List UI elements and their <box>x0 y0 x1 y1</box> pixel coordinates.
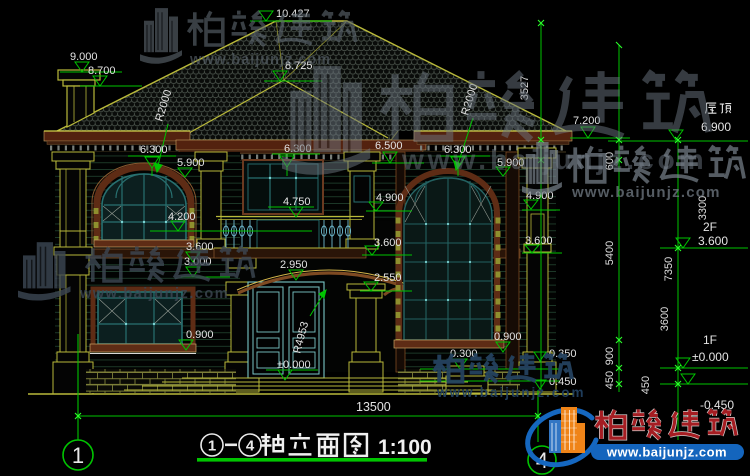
svg-text:3.600: 3.600 <box>374 237 402 249</box>
svg-text:4.200: 4.200 <box>168 211 196 223</box>
svg-text:4: 4 <box>246 438 255 455</box>
svg-text:3.600: 3.600 <box>525 235 553 247</box>
svg-text:450: 450 <box>640 376 652 394</box>
svg-text:450: 450 <box>604 371 616 389</box>
svg-text:www.baijunjz.com: www.baijunjz.com <box>606 445 727 460</box>
svg-text:www.baijunjz.com: www.baijunjz.com <box>79 286 229 302</box>
svg-text:±0.000: ±0.000 <box>692 350 729 364</box>
svg-text:1:100: 1:100 <box>378 436 432 459</box>
svg-text:8.700: 8.700 <box>88 65 116 77</box>
svg-text:6.300: 6.300 <box>140 144 168 156</box>
svg-text:2.950: 2.950 <box>280 259 308 271</box>
svg-text:3600: 3600 <box>659 307 671 331</box>
svg-text:0.900: 0.900 <box>186 329 214 341</box>
svg-text:±0.000: ±0.000 <box>277 359 311 371</box>
svg-text:13500: 13500 <box>356 400 391 414</box>
svg-text:2F: 2F <box>703 220 717 234</box>
svg-text:www.baijunjz.com: www.baijunjz.com <box>436 385 586 400</box>
svg-text:www.baijunjz.com: www.baijunjz.com <box>571 184 721 201</box>
svg-text:5400: 5400 <box>604 241 616 265</box>
svg-text:900: 900 <box>604 347 616 365</box>
svg-text:1: 1 <box>208 438 216 455</box>
svg-text:4.900: 4.900 <box>376 192 404 204</box>
svg-text:3.600: 3.600 <box>698 234 728 248</box>
svg-text:6.500: 6.500 <box>375 140 403 152</box>
svg-text:1: 1 <box>72 443 84 468</box>
svg-text:www.baijunjz.com: www.baijunjz.com <box>189 52 331 68</box>
svg-text:9.000: 9.000 <box>70 51 98 63</box>
svg-text:0.900: 0.900 <box>494 331 522 343</box>
svg-text:1F: 1F <box>703 333 717 347</box>
svg-text:7350: 7350 <box>663 257 675 281</box>
svg-text:5.900: 5.900 <box>177 157 205 169</box>
svg-text:2.550: 2.550 <box>374 272 402 284</box>
svg-text:4.750: 4.750 <box>283 196 311 208</box>
